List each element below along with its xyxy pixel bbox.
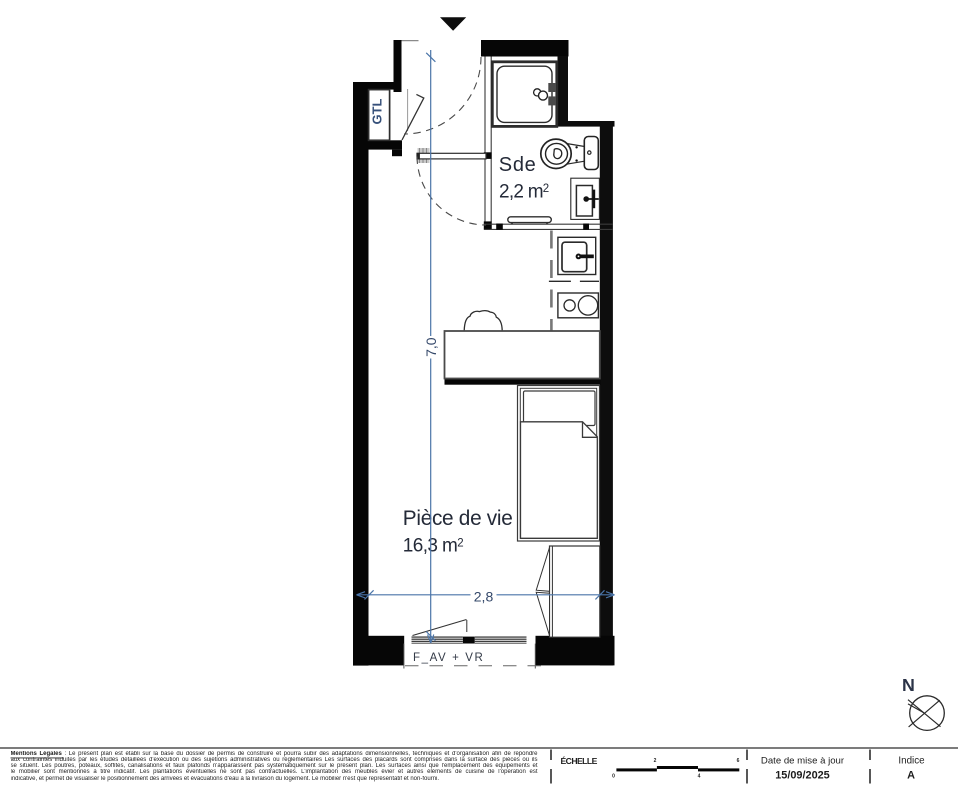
svg-text:15/09/2025: 15/09/2025 — [775, 770, 830, 782]
svg-text:ÉCHELLE: ÉCHELLE — [561, 756, 598, 766]
svg-text:6: 6 — [737, 758, 740, 764]
svg-text:Date de mise à jour: Date de mise à jour — [761, 756, 845, 767]
svg-text:Pièce de vie: Pièce de vie — [403, 507, 513, 530]
svg-text:GTL: GTL — [370, 98, 385, 124]
svg-text:16,3 m2: 16,3 m2 — [403, 536, 464, 557]
svg-text:Indice: Indice — [898, 756, 925, 767]
svg-text:F_AV + VR: F_AV + VR — [413, 652, 484, 664]
svg-text:A: A — [907, 769, 915, 781]
svg-text:2,2 m2: 2,2 m2 — [499, 181, 549, 202]
svg-text:N: N — [902, 675, 915, 695]
svg-text:4: 4 — [698, 774, 701, 780]
svg-text:Sde: Sde — [499, 154, 537, 176]
svg-text:2: 2 — [654, 758, 657, 764]
svg-text:0: 0 — [612, 774, 615, 780]
svg-text:2,8: 2,8 — [474, 588, 494, 604]
svg-text:7,0: 7,0 — [423, 337, 439, 357]
